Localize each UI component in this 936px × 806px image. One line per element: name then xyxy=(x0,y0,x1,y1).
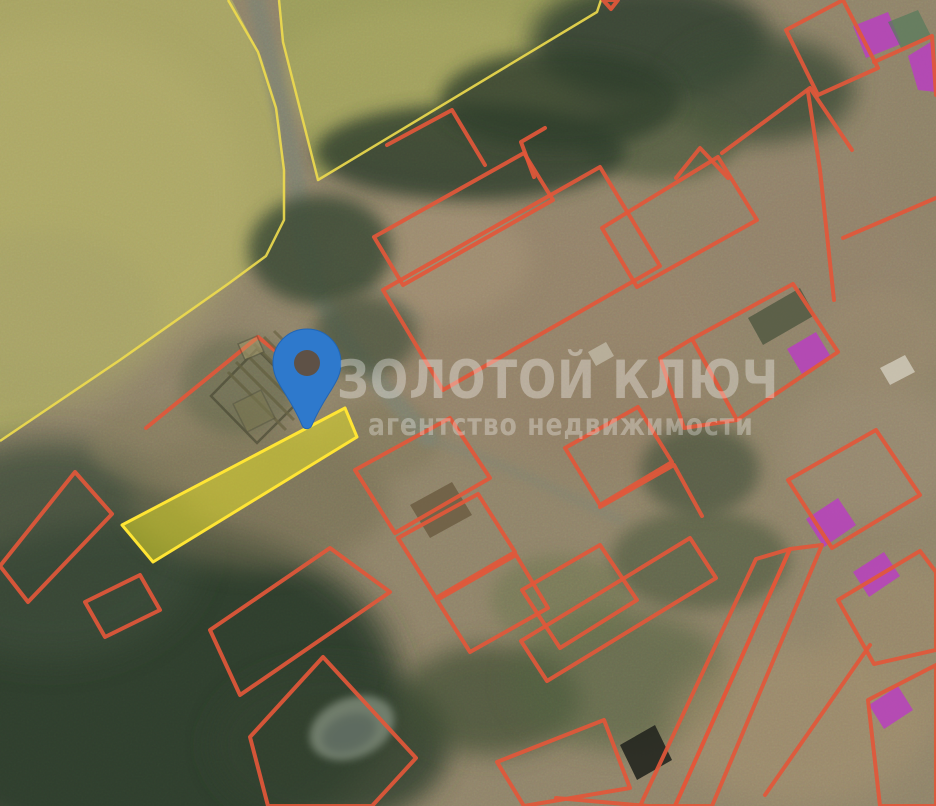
noise-overlay xyxy=(0,0,936,806)
map-view[interactable]: ЗОЛОТОЙ КЛЮЧ агентство недвижимости xyxy=(0,0,936,806)
satellite-canvas[interactable] xyxy=(0,0,936,806)
pin-hole xyxy=(294,350,320,376)
